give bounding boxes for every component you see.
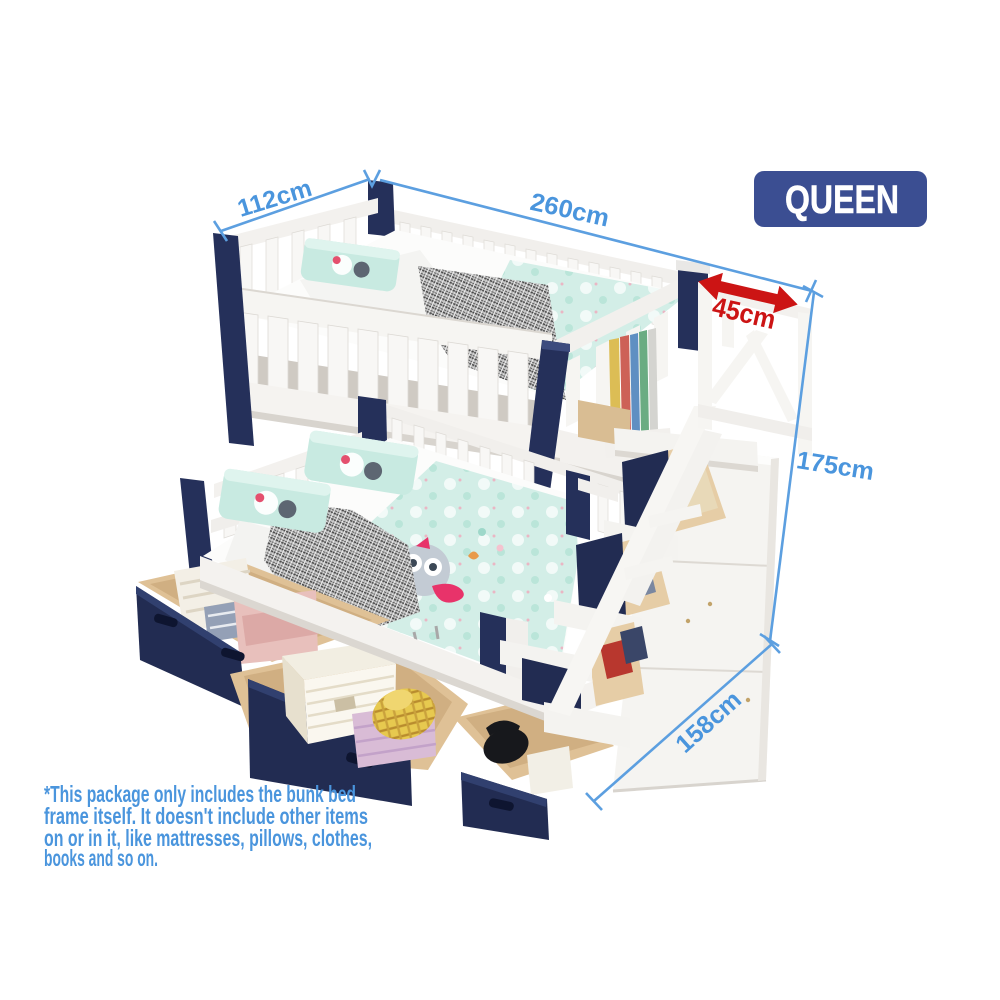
svg-text:books and so on.: books and so on. — [44, 845, 158, 871]
svg-text:QUEEN: QUEEN — [785, 178, 899, 222]
